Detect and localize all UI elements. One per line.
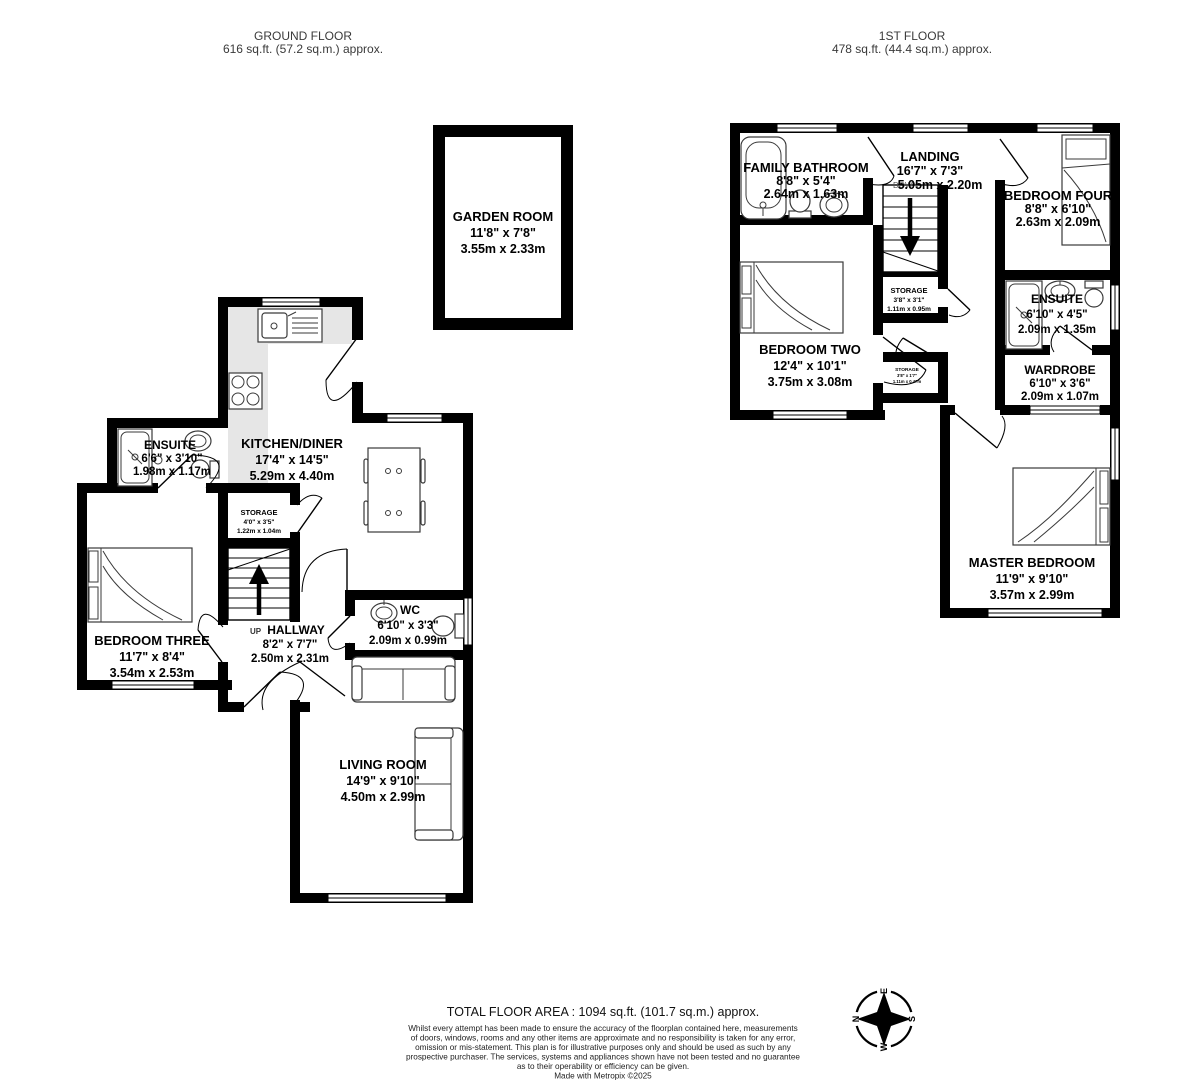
living-room-imperial: 14'9" x 9'10" (346, 774, 419, 788)
disclaimer-line-2: of doors, windows, rooms and any other i… (411, 1034, 796, 1043)
bedroom-four-door (1000, 139, 1028, 186)
bedroom-three-metric: 3.54m x 2.53m (110, 666, 195, 680)
wardrobe-imperial: 6'10" x 3'6" (1029, 378, 1090, 390)
hallway-name: HALLWAY (267, 623, 325, 637)
window (773, 411, 847, 419)
compass-south: S (907, 1016, 917, 1022)
total-floor-area: TOTAL FLOOR AREA : 1094 sq.ft. (101.7 sq… (447, 1005, 759, 1019)
compass-east: E (879, 988, 889, 994)
storage-gf-name: STORAGE (241, 508, 278, 517)
wardrobe-metric: 2.09m x 1.07m (1021, 391, 1099, 403)
room-bedroom-two-label: BEDROOM TWO 12'4" x 10'1" 3.75m x 3.08m (759, 342, 861, 389)
window (262, 298, 320, 306)
bathroom-door (868, 137, 894, 185)
disclaimer-line-3: omission or mis-statement. This plan is … (415, 1043, 792, 1052)
room-garden-room-label: GARDEN ROOM 11'8" x 7'8" 3.55m x 2.33m (453, 209, 553, 256)
garden-room-name: GARDEN ROOM (453, 209, 553, 224)
room-landing-label: LANDING 16'7" x 7'3" DOWN 5.05m x 2.20m (893, 149, 982, 192)
family-bathroom-imperial: 8'8" x 5'4" (776, 174, 836, 188)
room-hallway-label: UP HALLWAY 8'2" x 7'7" 2.50m x 2.31m (250, 623, 329, 665)
kitchen-diner-name: KITCHEN/DINER (241, 436, 343, 451)
ensuite-1f-name: ENSUITE (1031, 292, 1083, 306)
room-kitchen-diner-label: KITCHEN/DINER 17'4" x 14'5" 5.29m x 4.40… (241, 436, 343, 483)
disclaimer-line-1: Whilst every attempt has been made to en… (408, 1024, 798, 1033)
landing-metric: 5.05m x 2.20m (898, 178, 983, 192)
bedroom-four-name: BEDROOM FOUR (1004, 188, 1113, 203)
metropix-credit: Made with Metropix ©2025 (554, 1072, 652, 1080)
landing-imperial: 16'7" x 7'3" (897, 164, 964, 178)
sofa-top-icon (352, 657, 455, 702)
ground-floor-title: GROUND FLOOR (254, 29, 352, 43)
ensuite-gf-name: ENSUITE (144, 438, 196, 452)
compass-icon: N E S W (849, 984, 919, 1054)
room-storage-gf-label: STORAGE 4'0" x 3'5" 1.22m x 1.04m (237, 508, 281, 535)
storage-gf-imperial: 4'0" x 3'5" (244, 519, 275, 526)
garden-room-imperial: 11'8" x 7'8" (470, 226, 536, 240)
kitchen-hall-door (302, 549, 347, 592)
bedroom-two-name: BEDROOM TWO (759, 342, 861, 357)
master-bed-icon (1013, 468, 1110, 545)
hallway-up-label: UP (250, 627, 262, 636)
window (1111, 285, 1119, 330)
first-floor-stairs (883, 185, 938, 272)
ensuite-1f-toilet-icon (1085, 281, 1103, 307)
window (112, 681, 194, 689)
family-bathroom-name: FAMILY BATHROOM (743, 160, 868, 175)
storage-1f-small-imperial: 3'8" x 1'7" (897, 373, 917, 378)
storage-1f-metric: 1.11m x 0.95m (887, 306, 931, 313)
landing-name: LANDING (900, 149, 959, 164)
ensuite-gf-metric: 1.98m x 1.17m (133, 466, 211, 478)
ground-floor-header: GROUND FLOOR 616 sq.ft. (57.2 sq.m.) app… (223, 29, 383, 56)
sofa-right-icon (415, 728, 463, 840)
ensuite-gf-imperial: 6'6" x 3'10" (141, 453, 202, 465)
family-bathroom-metric: 2.64m x 1.63m (764, 187, 849, 201)
garden-room-metric: 3.55m x 2.33m (461, 242, 546, 256)
bedroom-three-imperial: 11'7" x 8'4" (119, 650, 185, 664)
wc-name: WC (400, 603, 420, 617)
window (777, 124, 837, 132)
floorplan-svg: GROUND FLOOR 616 sq.ft. (57.2 sq.m.) app… (0, 0, 1200, 1080)
bed-two-icon (740, 262, 843, 333)
storage-1f-small-metric: 1.11m x 0.47m (893, 379, 921, 384)
disclaimer-line-4: prospective purchaser. The services, sys… (406, 1053, 800, 1062)
kitchen-sink-icon (258, 309, 322, 342)
wardrobe-name: WARDROBE (1024, 363, 1095, 377)
ensuite-1f-imperial: 6'10" x 4'5" (1026, 309, 1087, 321)
floorplan-page: GROUND FLOOR 616 sq.ft. (57.2 sq.m.) app… (0, 0, 1200, 1080)
hallway-imperial: 8'2" x 7'7" (263, 639, 318, 651)
room-storage-1f-label: STORAGE 3'8" x 3'1" 1.11m x 0.95m (887, 286, 931, 313)
dining-table-icon (364, 448, 425, 532)
room-storage-1f-small-label: STORAGE 3'8" x 1'7" 1.11m x 0.47m (893, 367, 921, 384)
window (464, 598, 472, 645)
master-bedroom-imperial: 11'9" x 9'10" (996, 572, 1069, 586)
bedroom-two-metric: 3.75m x 3.08m (768, 375, 853, 389)
bed-three-icon (88, 548, 192, 622)
kitchen-diner-imperial: 17'4" x 14'5" (255, 453, 328, 467)
storage-gf-metric: 1.22m x 1.04m (237, 528, 281, 535)
window (913, 124, 968, 132)
disclaimer-line-5: as to their operability or efficiency ca… (517, 1062, 689, 1071)
window (1030, 406, 1100, 414)
hob-icon (229, 373, 262, 409)
window (328, 894, 446, 902)
bedroom-four-metric: 2.63m x 2.09m (1016, 215, 1101, 229)
storage-1f-door (948, 289, 970, 317)
footer: TOTAL FLOOR AREA : 1094 sq.ft. (101.7 sq… (406, 1005, 800, 1080)
storage-1f-name: STORAGE (891, 286, 928, 295)
hallway-metric: 2.50m x 2.31m (251, 653, 329, 665)
window (988, 609, 1102, 617)
room-wardrobe-label: WARDROBE 6'10" x 3'6" 2.09m x 1.07m (1021, 363, 1099, 403)
ensuite-1f-metric: 2.09m x 1.35m (1018, 324, 1096, 336)
master-bedroom-metric: 3.57m x 2.99m (990, 588, 1075, 602)
wc-metric: 2.09m x 0.99m (369, 635, 447, 647)
window (1111, 428, 1119, 480)
bedroom-three-name: BEDROOM THREE (94, 633, 210, 648)
living-room-name: LIVING ROOM (339, 757, 426, 772)
storage-1f-imperial: 3'8" x 3'1" (894, 297, 925, 304)
room-master-bedroom-label: MASTER BEDROOM 11'9" x 9'10" 3.57m x 2.9… (969, 555, 1095, 602)
first-floor-header: 1ST FLOOR 478 sq.ft. (44.4 sq.m.) approx… (832, 29, 992, 56)
room-bedroom-three-label: BEDROOM THREE 11'7" x 8'4" 3.54m x 2.53m (94, 633, 210, 680)
bedroom-four-imperial: 8'8" x 6'10" (1025, 202, 1092, 216)
window (1037, 124, 1093, 132)
wc-imperial: 6'10" x 3'3" (377, 620, 438, 632)
first-floor-title: 1ST FLOOR (879, 29, 946, 43)
master-bedroom-name: MASTER BEDROOM (969, 555, 1095, 570)
compass-north: N (851, 1016, 861, 1023)
master-bedroom-door (955, 413, 1005, 448)
window (387, 414, 442, 422)
compass-west: W (879, 1042, 889, 1051)
first-floor-area: 478 sq.ft. (44.4 sq.m.) approx. (832, 42, 992, 56)
bedroom-two-imperial: 12'4" x 10'1" (773, 359, 846, 373)
living-room-metric: 4.50m x 2.99m (341, 790, 426, 804)
kitchen-diner-metric: 5.29m x 4.40m (250, 469, 335, 483)
room-living-room-label: LIVING ROOM 14'9" x 9'10" 4.50m x 2.99m (339, 757, 426, 804)
ground-floor-area: 616 sq.ft. (57.2 sq.m.) approx. (223, 42, 383, 56)
ground-stairs (228, 548, 290, 620)
